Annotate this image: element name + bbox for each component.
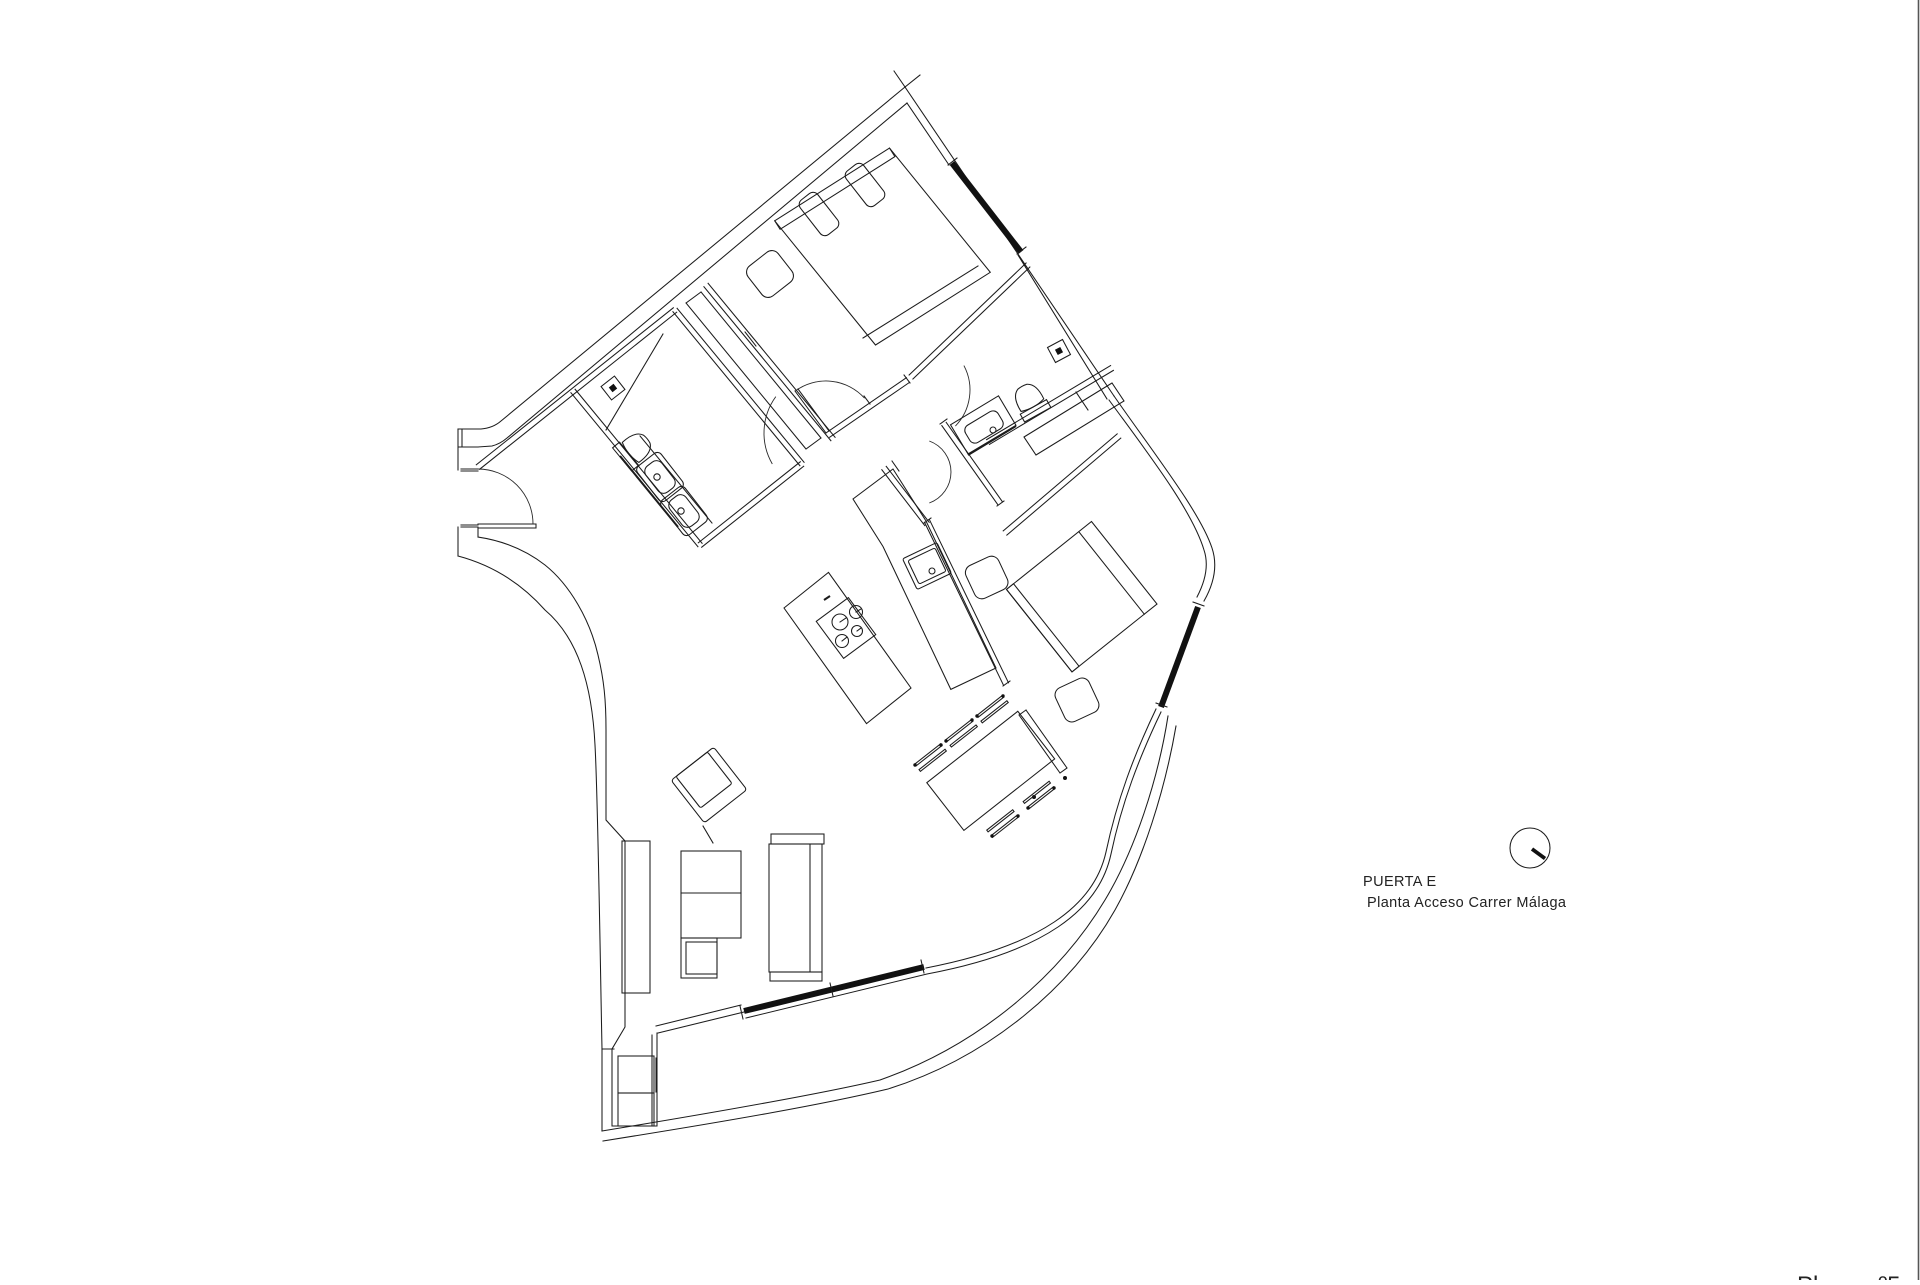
svg-text:Planta Acceso Carrer Málaga: Planta Acceso Carrer Málaga bbox=[1367, 895, 1567, 911]
svg-text:PUERTA E: PUERTA E bbox=[1363, 874, 1437, 890]
svg-text:Plano nº5: Plano nº5 bbox=[1797, 1272, 1901, 1280]
